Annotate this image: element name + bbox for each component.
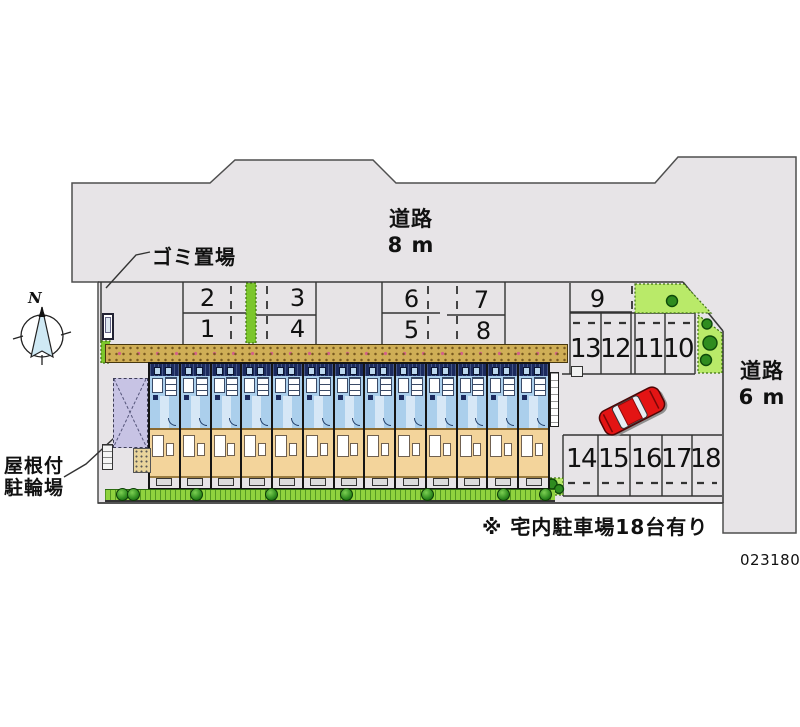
compass-north-letter: N [27,289,43,307]
bike-shed-label-line2: 駐輪場 [4,477,64,499]
compass: N [13,289,71,365]
bike-shed-label-line1: 屋根付 [4,455,64,477]
unit-living-area [427,428,456,478]
unit-living-area [458,428,487,478]
road-right-name: 道路 [734,358,790,384]
unit-entry-step [212,478,241,488]
plan-number: 023180 [740,551,800,569]
unit-kitchen-area [396,376,425,428]
bush-icon [497,488,510,501]
unit-living-area [396,428,425,478]
garbage-station-box [102,313,114,340]
apartment-unit [363,364,394,488]
apartment-unit [179,364,210,488]
unit-entry-step [242,478,271,488]
unit-living-area [212,428,241,478]
unit-entry-step [365,478,394,488]
unit-roof [458,364,487,376]
stall-number-8: 8 [468,319,498,343]
unit-kitchen-area [150,376,179,428]
stall-number-14: 14 [566,446,596,472]
unit-roof [519,364,548,376]
unit-roof [181,364,210,376]
unit-kitchen-area [304,376,333,428]
apartment-unit [150,364,179,488]
bush-icon [340,488,353,501]
unit-entry-step [458,478,487,488]
unit-kitchen-area [519,376,548,428]
unit-kitchen-area [242,376,271,428]
bike-shed-label: 屋根付 駐輪場 [4,455,64,499]
stall-number-10: 10 [663,336,693,362]
unit-living-area [365,428,394,478]
unit-entry-step [488,478,517,488]
hedge-strip [246,283,256,343]
unit-living-area [335,428,364,478]
meter-panel [102,444,113,470]
stall-number-11: 11 [633,336,663,362]
stall-number-13: 13 [570,336,600,362]
stall-number-7: 7 [466,288,496,312]
unit-kitchen-area [427,376,456,428]
stall-number-12: 12 [600,336,630,362]
apartment-unit [456,364,487,488]
apartment-unit [240,364,271,488]
parking-note: ※ 宅内駐車場18台有り [482,511,708,540]
unit-roof [427,364,456,376]
bush-icon [190,488,203,501]
apartment-unit [486,364,517,488]
unit-kitchen-area [273,376,302,428]
stall-number-1: 1 [192,317,222,341]
apartment-unit [333,364,364,488]
unit-kitchen-area [335,376,364,428]
unit-living-area [181,428,210,478]
unit-kitchen-area [212,376,241,428]
unit-roof [212,364,241,376]
unit-kitchen-area [488,376,517,428]
compass-needle-tip [39,307,46,317]
apartment-unit [302,364,333,488]
site-plan: N 道路 8 m 道路 6 m ゴミ置場 屋根 [0,0,800,727]
utility-box [571,366,583,377]
bush-icon [421,488,434,501]
unit-roof [150,364,179,376]
stall-number-16: 16 [631,446,661,472]
road-top-width: 8 m [385,232,437,258]
road-right-width: 6 m [734,384,790,410]
unit-kitchen-area [181,376,210,428]
apartment-unit [517,364,548,488]
unit-entry-step [304,478,333,488]
unit-entry-step [150,478,179,488]
stall-number-3: 3 [282,286,312,310]
unit-roof [365,364,394,376]
unit-roof [273,364,302,376]
garbage-station-label: ゴミ置場 [152,241,236,270]
apartment-unit [210,364,241,488]
road-top-name: 道路 [385,206,437,232]
brick-wall [105,344,568,363]
bicycle-shed [113,378,148,448]
apartment-unit [394,364,425,488]
unit-entry-step [181,478,210,488]
apartment-unit [271,364,302,488]
unit-roof [488,364,517,376]
unit-living-area [304,428,333,478]
bush-icon [265,488,278,501]
bush-icon [127,488,140,501]
storage-box [133,448,151,473]
stall-number-2: 2 [192,286,222,310]
grass-strip [105,489,555,502]
unit-living-area [150,428,179,478]
unit-roof [304,364,333,376]
stall-number-4: 4 [282,317,312,341]
unit-roof [335,364,364,376]
unit-entry-step [427,478,456,488]
stall-number-5: 5 [396,318,426,342]
stall-number-17: 17 [661,446,691,472]
apartment-unit [425,364,456,488]
unit-living-area [519,428,548,478]
unit-roof [396,364,425,376]
building-stair-end [550,372,559,427]
stall-number-15: 15 [598,446,628,472]
stall-number-6: 6 [396,287,426,311]
unit-entry-step [519,478,548,488]
bush-icon [701,355,712,366]
bush-icon [667,296,678,307]
stall-number-18: 18 [690,446,720,472]
road-top-label: 道路 8 m [385,206,437,258]
unit-living-area [273,428,302,478]
unit-kitchen-area [365,376,394,428]
unit-entry-step [273,478,302,488]
bush-icon [555,485,564,494]
bush-icon [539,488,552,501]
unit-living-area [242,428,271,478]
unit-roof [242,364,271,376]
stall-number-9: 9 [582,287,612,311]
bush-icon [702,319,712,329]
unit-entry-step [335,478,364,488]
unit-living-area [488,428,517,478]
unit-entry-step [396,478,425,488]
bush-icon [703,336,717,350]
unit-kitchen-area [458,376,487,428]
apartment-building [148,362,550,490]
road-right-label: 道路 6 m [734,358,790,410]
bicycle-shed-cross-icon [114,379,146,446]
